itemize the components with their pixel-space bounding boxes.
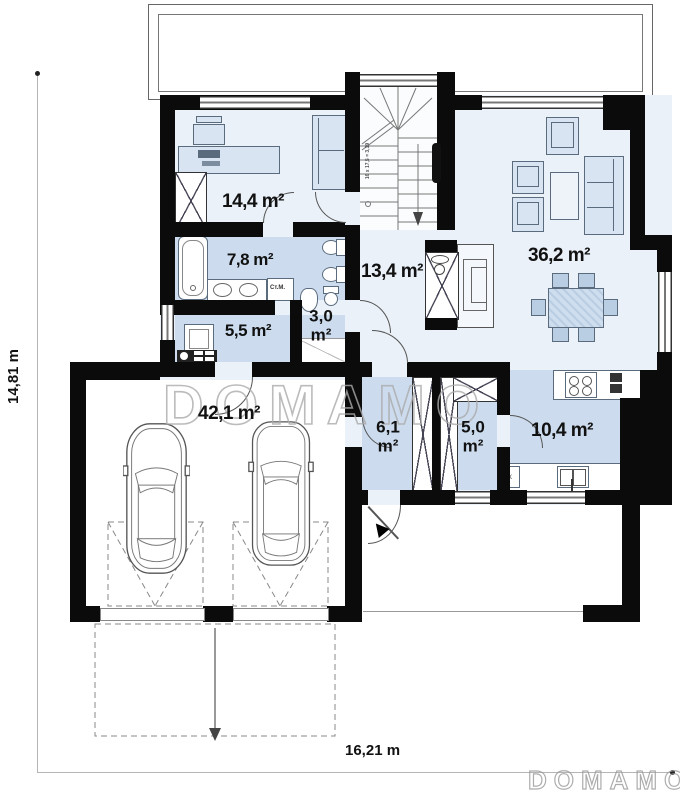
burner bbox=[569, 386, 579, 396]
window bbox=[658, 272, 672, 352]
burner bbox=[582, 376, 592, 386]
room-label-garage: 42,1 m² bbox=[198, 403, 260, 425]
room-label-office: 14,4 m² bbox=[222, 191, 284, 213]
window bbox=[455, 491, 490, 504]
office-sofa-mid-line bbox=[318, 150, 344, 151]
wall bbox=[497, 447, 510, 490]
stove bbox=[565, 372, 597, 398]
utility-hob-squares bbox=[194, 351, 214, 361]
floor-plan-page: 14,81 m 16,21 m Ст.М. bbox=[0, 0, 680, 800]
burner bbox=[582, 386, 592, 396]
fireplace-body bbox=[457, 244, 494, 328]
washing-machine-label: Ст.М. bbox=[270, 285, 285, 291]
wall bbox=[345, 72, 360, 192]
window bbox=[482, 96, 603, 109]
wall bbox=[455, 95, 482, 110]
dining-chair bbox=[578, 327, 595, 342]
garage-door-panel bbox=[233, 608, 329, 621]
wall bbox=[203, 606, 233, 622]
porch-floor bbox=[362, 505, 622, 605]
armchair-top-inner bbox=[551, 122, 574, 148]
wall bbox=[345, 447, 362, 622]
armchair-top bbox=[546, 117, 579, 155]
dining-chair bbox=[603, 299, 618, 316]
sink-tap bbox=[571, 479, 573, 491]
dining-chair bbox=[552, 327, 569, 342]
sofa-back-line bbox=[613, 159, 614, 231]
dining-chair bbox=[531, 299, 546, 316]
wall bbox=[160, 300, 275, 315]
washing-machine: Ст.М. bbox=[267, 278, 294, 301]
wall bbox=[345, 225, 360, 300]
room-label-vestibule-value: 6,1 bbox=[376, 417, 400, 436]
wall bbox=[70, 362, 86, 622]
room-label-wc-unit: m² bbox=[311, 325, 332, 344]
dining-chair bbox=[578, 273, 595, 288]
armchair-left-2 bbox=[512, 197, 544, 232]
room-label-kitchen: 10,4 m² bbox=[531, 420, 593, 442]
bathtub bbox=[178, 236, 208, 300]
window bbox=[161, 305, 174, 340]
sofa-seat-line-1 bbox=[587, 182, 613, 183]
wall bbox=[400, 490, 455, 505]
room-label-vestibule: 6,1 m² bbox=[376, 418, 400, 455]
wall bbox=[70, 606, 100, 622]
wall bbox=[345, 490, 368, 505]
wall bbox=[160, 222, 263, 237]
dimension-dot-top bbox=[35, 71, 40, 76]
wall bbox=[293, 222, 345, 237]
sink-basin-1 bbox=[213, 283, 232, 297]
wall bbox=[657, 352, 672, 505]
wall bbox=[622, 505, 640, 605]
porch-edge-line bbox=[363, 611, 583, 612]
room-label-bathroom: 7,8 m² bbox=[227, 250, 273, 270]
window bbox=[527, 491, 585, 504]
wc-toilet-bowl bbox=[324, 292, 338, 306]
desk-computer-icon bbox=[198, 150, 220, 158]
kitchen-appliance-marker bbox=[610, 373, 622, 382]
room-label-vestibule-unit: m² bbox=[378, 436, 399, 455]
fireplace-hearth bbox=[471, 267, 487, 303]
desk bbox=[178, 146, 280, 174]
vertical-dimension-label: 14,81 m bbox=[5, 349, 22, 404]
utility-worktop bbox=[177, 350, 217, 362]
office-sofa-cushion-line bbox=[318, 118, 319, 184]
window bbox=[360, 74, 437, 87]
armchair-left-2-inner bbox=[517, 202, 539, 225]
room-label-pantry: 5,0 m² bbox=[461, 418, 485, 455]
wall bbox=[327, 606, 360, 622]
horizontal-dimension-label: 16,21 m bbox=[345, 742, 400, 759]
room-label-utility: 5,5 m² bbox=[225, 321, 271, 341]
room-label-pantry-value: 5,0 bbox=[461, 417, 485, 436]
wall bbox=[585, 490, 672, 505]
room-label-living: 36,2 m² bbox=[528, 245, 590, 267]
room-label-pantry-unit: m² bbox=[463, 436, 484, 455]
wall bbox=[630, 235, 672, 250]
wall bbox=[490, 490, 527, 505]
wall bbox=[583, 605, 640, 622]
wall bbox=[160, 95, 175, 305]
stairs-note: 16 x 17,5 = 3,19 bbox=[365, 131, 371, 191]
dining-chair bbox=[552, 273, 569, 288]
wall bbox=[630, 110, 645, 250]
armchair-left-1-inner bbox=[517, 166, 539, 187]
car-top-view bbox=[123, 417, 190, 580]
vertical-dimension-line bbox=[37, 73, 38, 772]
sink-basin-2 bbox=[239, 283, 258, 297]
room-label-hall: 13,4 m² bbox=[361, 261, 423, 283]
boiler-inner bbox=[189, 329, 209, 349]
fireplace-wall-top bbox=[425, 240, 457, 252]
dining-table bbox=[548, 288, 604, 328]
fireplace-vent-oval bbox=[431, 255, 449, 264]
tv-shelf bbox=[196, 116, 222, 123]
wall bbox=[620, 398, 657, 490]
bathtub-drain bbox=[190, 285, 196, 291]
utility-sink-circle bbox=[180, 352, 188, 360]
wall bbox=[657, 250, 672, 272]
window bbox=[200, 96, 310, 109]
fireplace-wall-bottom bbox=[425, 318, 457, 330]
sofa-seat-line-2 bbox=[587, 207, 613, 208]
room-label-wc-value: 3,0 bbox=[309, 306, 333, 325]
armchair-left-1 bbox=[512, 161, 544, 194]
wall bbox=[497, 377, 510, 415]
car-top-view bbox=[245, 420, 317, 567]
sink-bowl-right bbox=[573, 469, 586, 486]
radiator bbox=[432, 143, 441, 183]
office-sofa bbox=[312, 115, 347, 190]
kitchen-appliance-marker bbox=[610, 384, 622, 393]
fireplace-vent-circle bbox=[434, 264, 445, 275]
wall bbox=[640, 370, 657, 398]
kitchen-sink bbox=[557, 466, 589, 488]
watermark-logo: DOMAMO bbox=[528, 765, 680, 796]
sofa bbox=[584, 156, 624, 235]
stairs bbox=[360, 86, 437, 230]
room-label-wc: 3,0 m² bbox=[309, 307, 333, 344]
double-sink-counter bbox=[207, 279, 267, 301]
desk-keyboard-icon bbox=[202, 161, 220, 166]
coffee-table bbox=[550, 172, 579, 220]
garage-door-panel bbox=[100, 608, 205, 621]
tv-cabinet bbox=[193, 124, 225, 145]
burner bbox=[569, 376, 579, 386]
